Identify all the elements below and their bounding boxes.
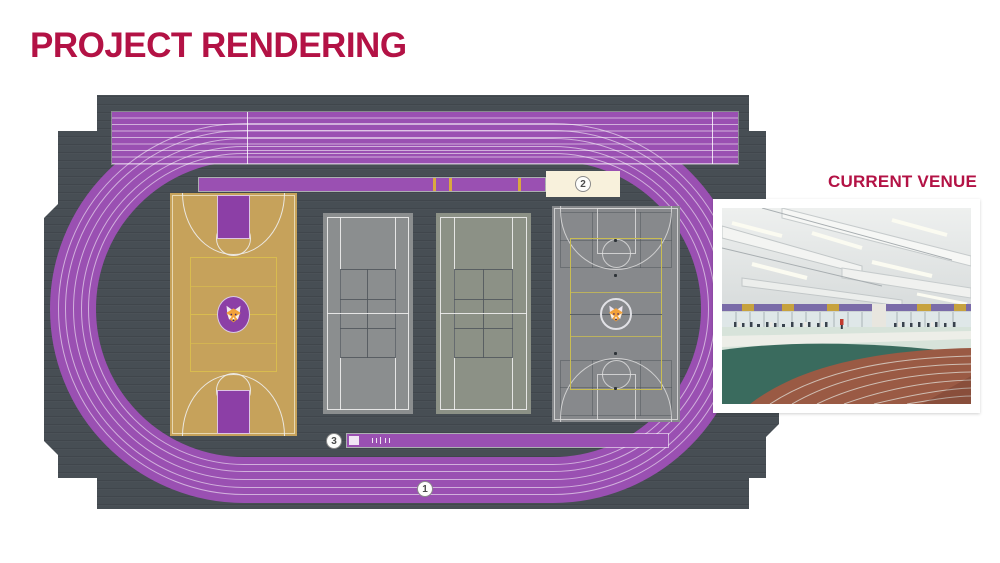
service-line (340, 299, 396, 300)
sand-pit (349, 436, 359, 445)
finish-line (712, 112, 713, 164)
runway-mark (449, 178, 452, 191)
current-venue-photo (722, 208, 971, 404)
attack-line (190, 286, 277, 287)
key-lane (217, 390, 250, 434)
pit-area: 2 (546, 171, 620, 197)
callout-2-badge: 2 (575, 176, 591, 192)
attack-line (570, 292, 662, 293)
center-circle (217, 296, 250, 333)
runway-mark (385, 438, 386, 443)
slide: PROJECT RENDERING (0, 0, 1000, 563)
court-dot (614, 387, 617, 390)
page-title: PROJECT RENDERING (30, 26, 407, 66)
runway-mark (372, 438, 373, 443)
fox-logo-icon (223, 304, 244, 325)
runway-mark (380, 437, 381, 444)
service-line (340, 328, 396, 329)
runway-bottom (347, 434, 668, 447)
current-venue-photo-card (713, 199, 980, 413)
court-dot (614, 274, 617, 277)
tennis-court-2 (436, 213, 531, 414)
runway-mark (518, 178, 521, 191)
center-circle (600, 298, 632, 330)
net-line (327, 313, 409, 314)
fox-logo-icon (606, 304, 626, 324)
current-venue-label: CURRENT VENUE (828, 172, 977, 192)
callout-1-badge: 1 (417, 481, 433, 497)
runway-top (199, 178, 545, 191)
runway-mark (389, 438, 390, 443)
runway-mark (433, 178, 436, 191)
court-dot (614, 239, 617, 242)
key-lane (217, 195, 250, 239)
attack-line (570, 336, 662, 337)
court-dot (614, 352, 617, 355)
net-line (440, 313, 527, 314)
callout-3-badge: 3 (326, 433, 342, 449)
multipurpose-court (552, 206, 680, 422)
basketball-court (170, 193, 297, 436)
attack-line (190, 343, 277, 344)
tennis-court-1 (323, 213, 413, 414)
runway-mark (376, 438, 377, 443)
indoor-track-photo-scene (722, 208, 971, 404)
